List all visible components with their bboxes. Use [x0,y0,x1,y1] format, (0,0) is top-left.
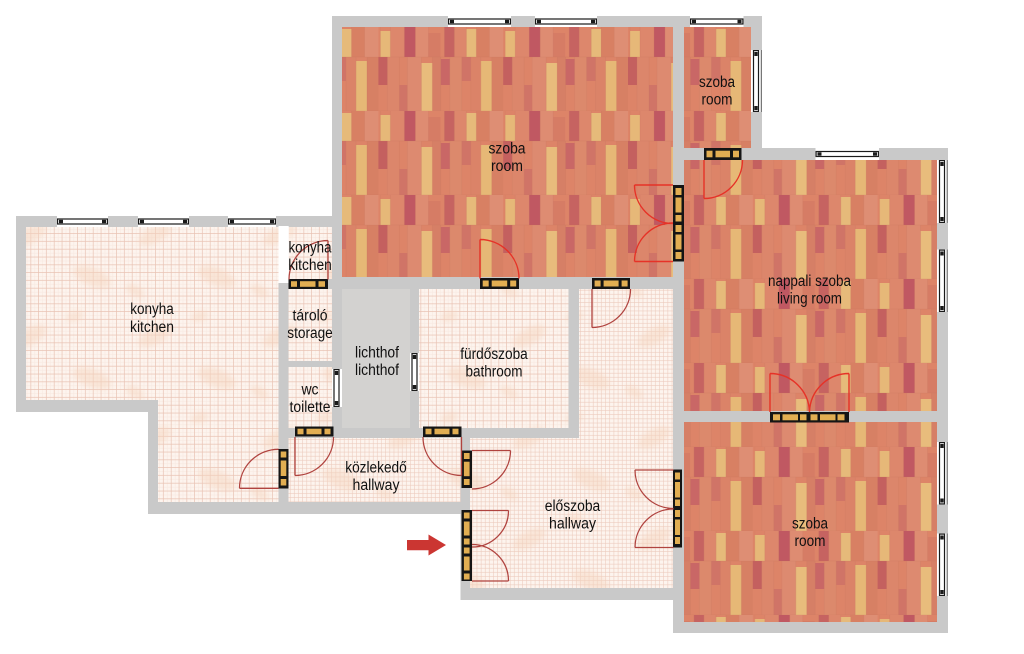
svg-text:fürdőszoba: fürdőszoba [460,346,528,363]
svg-text:előszoba: előszoba [545,498,601,515]
svg-text:konyha: konyha [289,240,332,257]
svg-text:hallway: hallway [549,516,596,533]
svg-text:wc: wc [301,382,319,399]
svg-text:szoba: szoba [699,74,735,91]
svg-text:storage: storage [287,325,333,342]
svg-text:room: room [795,533,826,550]
svg-text:toilette: toilette [290,399,331,416]
svg-text:közlekedő: közlekedő [345,460,407,477]
svg-text:living room: living room [777,291,842,308]
svg-text:kitchen: kitchen [288,257,332,274]
svg-text:kitchen: kitchen [130,319,174,336]
svg-text:room: room [702,92,733,109]
svg-text:lichthof: lichthof [355,362,400,379]
svg-text:bathroom: bathroom [466,364,523,381]
svg-text:room: room [491,158,523,175]
svg-text:nappali szoba: nappali szoba [768,273,851,290]
svg-text:szoba: szoba [792,516,828,533]
svg-text:konyha: konyha [130,301,174,318]
svg-text:szoba: szoba [489,141,526,158]
svg-text:lichthof: lichthof [355,345,400,362]
svg-text:hallway: hallway [353,477,400,494]
svg-text:tároló: tároló [293,308,328,325]
